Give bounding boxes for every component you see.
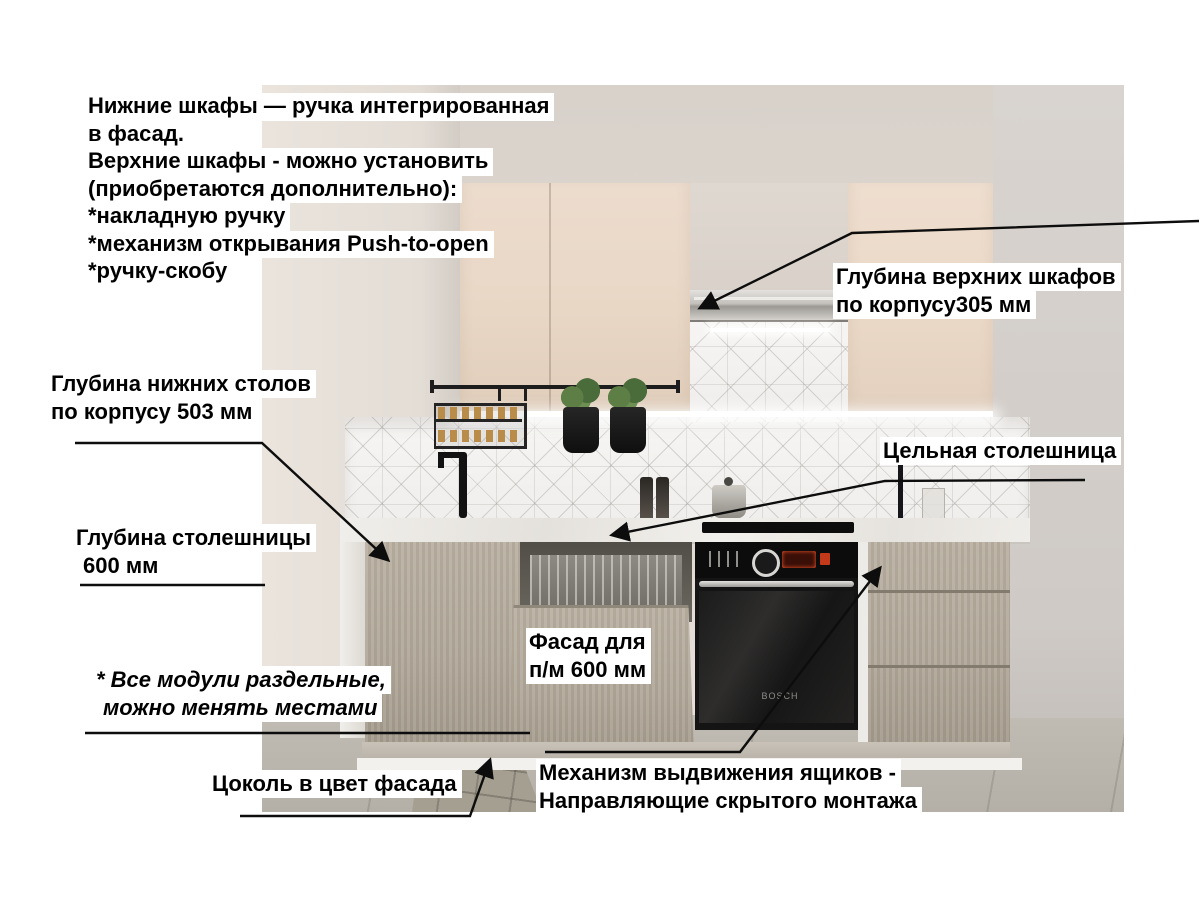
oven-display-secondary — [820, 553, 830, 565]
rail-hook — [498, 389, 501, 401]
hanging-pot-left — [563, 407, 599, 453]
range-hood — [690, 290, 848, 322]
drawer-mechanism-line: Направляющие скрытого монтажа — [536, 787, 922, 815]
callout-base-cabinet-depth: Глубина нижних столов по корпусу 503 мм — [48, 370, 316, 426]
faucet-outlet — [438, 452, 444, 468]
top-note-line: (приобретаются дополнительно): — [85, 176, 462, 204]
teapot-lid — [724, 477, 733, 486]
callout-countertop-depth: Глубина столешницы 600 мм — [73, 524, 316, 580]
solid-countertop-label: Цельная столешница — [880, 437, 1121, 465]
oven-handle — [699, 581, 854, 587]
drawer-gap-bottom — [868, 665, 1010, 668]
countertop-depth-line: Глубина столешницы — [73, 524, 316, 552]
rail-end-left — [430, 380, 434, 393]
oven-knob — [752, 549, 780, 577]
oven-brand-logo: BOSCH — [750, 691, 810, 701]
spice-jars-bottom — [438, 430, 518, 442]
spice-jars-top — [438, 407, 518, 419]
callout-upper-cabinet-depth: Глубина верхних шкафов по корпусу305 мм — [833, 263, 1121, 319]
top-note-line: Верхние шкафы - можно установить — [85, 148, 493, 176]
callout-dishwasher-front: Фасад для п/м 600 мм — [526, 628, 651, 684]
rail-hook — [524, 389, 527, 401]
cabinet-filler — [858, 542, 868, 742]
drawer-gap-top — [868, 590, 1010, 593]
callout-drawer-mechanism: Механизм выдвижения ящиков - Направляющи… — [536, 759, 922, 815]
top-note-line: *ручку-скобу — [85, 258, 232, 286]
countertop-depth-line: 600 мм — [73, 552, 163, 580]
upper-depth-line: Глубина верхних шкафов — [833, 263, 1121, 291]
upper-depth-line: по корпусу305 мм — [833, 291, 1036, 319]
base-depth-line: по корпусу 503 мм — [48, 398, 257, 426]
top-note-line: Нижние шкафы — ручка интегрированная — [85, 93, 554, 121]
oven-door — [699, 591, 854, 723]
callout-modules-note: * Все модули раздельные, можно менять ме… — [93, 666, 391, 722]
countertop — [340, 518, 1030, 544]
drawer-mechanism-line: Механизм выдвижения ящиков - — [536, 759, 901, 787]
plant-right — [606, 377, 650, 411]
right-wall — [993, 85, 1124, 718]
plant-left — [559, 377, 603, 411]
top-note-line: *механизм открывания Push-to-open — [85, 231, 494, 259]
hanging-pot-right — [610, 407, 646, 453]
pepper-grinder — [640, 477, 653, 518]
oven-display — [782, 551, 816, 568]
base-depth-line: Глубина нижних столов — [48, 370, 316, 398]
callout-solid-countertop: Цельная столешница — [880, 437, 1121, 465]
spice-shelf-bar — [434, 419, 522, 422]
modules-note-line: можно менять местами — [93, 694, 382, 722]
faucet — [459, 452, 467, 518]
oven-panel-icons — [709, 551, 743, 567]
hood-backsplash-tiles — [690, 322, 848, 422]
top-note-line: в фасад. — [85, 121, 189, 149]
teapot — [712, 485, 746, 518]
plinth-label: Цоколь в цвет фасада — [209, 770, 462, 798]
callout-plinth: Цоколь в цвет фасада — [209, 770, 462, 798]
under-cabinet-led — [460, 411, 993, 417]
drawer-stack — [868, 542, 1010, 742]
glass-cup — [922, 488, 945, 520]
range-hood-visor — [694, 297, 844, 300]
induction-hob — [702, 522, 854, 533]
range-hood-light — [710, 328, 830, 332]
page: { "annotations": { "top_note": { "lines"… — [0, 0, 1201, 900]
salt-grinder — [656, 477, 669, 518]
plinth — [362, 742, 1010, 758]
dishwasher-front-line: п/м 600 мм — [526, 656, 651, 684]
rail-end-right — [676, 380, 680, 393]
hood-recess-wall — [690, 183, 848, 293]
modules-note-line: * Все модули раздельные, — [93, 666, 391, 694]
callout-top-note: Нижние шкафы — ручка интегрированная в ф… — [85, 93, 554, 286]
dishwasher-front-line: Фасад для — [526, 628, 651, 656]
top-note-line: *накладную ручку — [85, 203, 290, 231]
